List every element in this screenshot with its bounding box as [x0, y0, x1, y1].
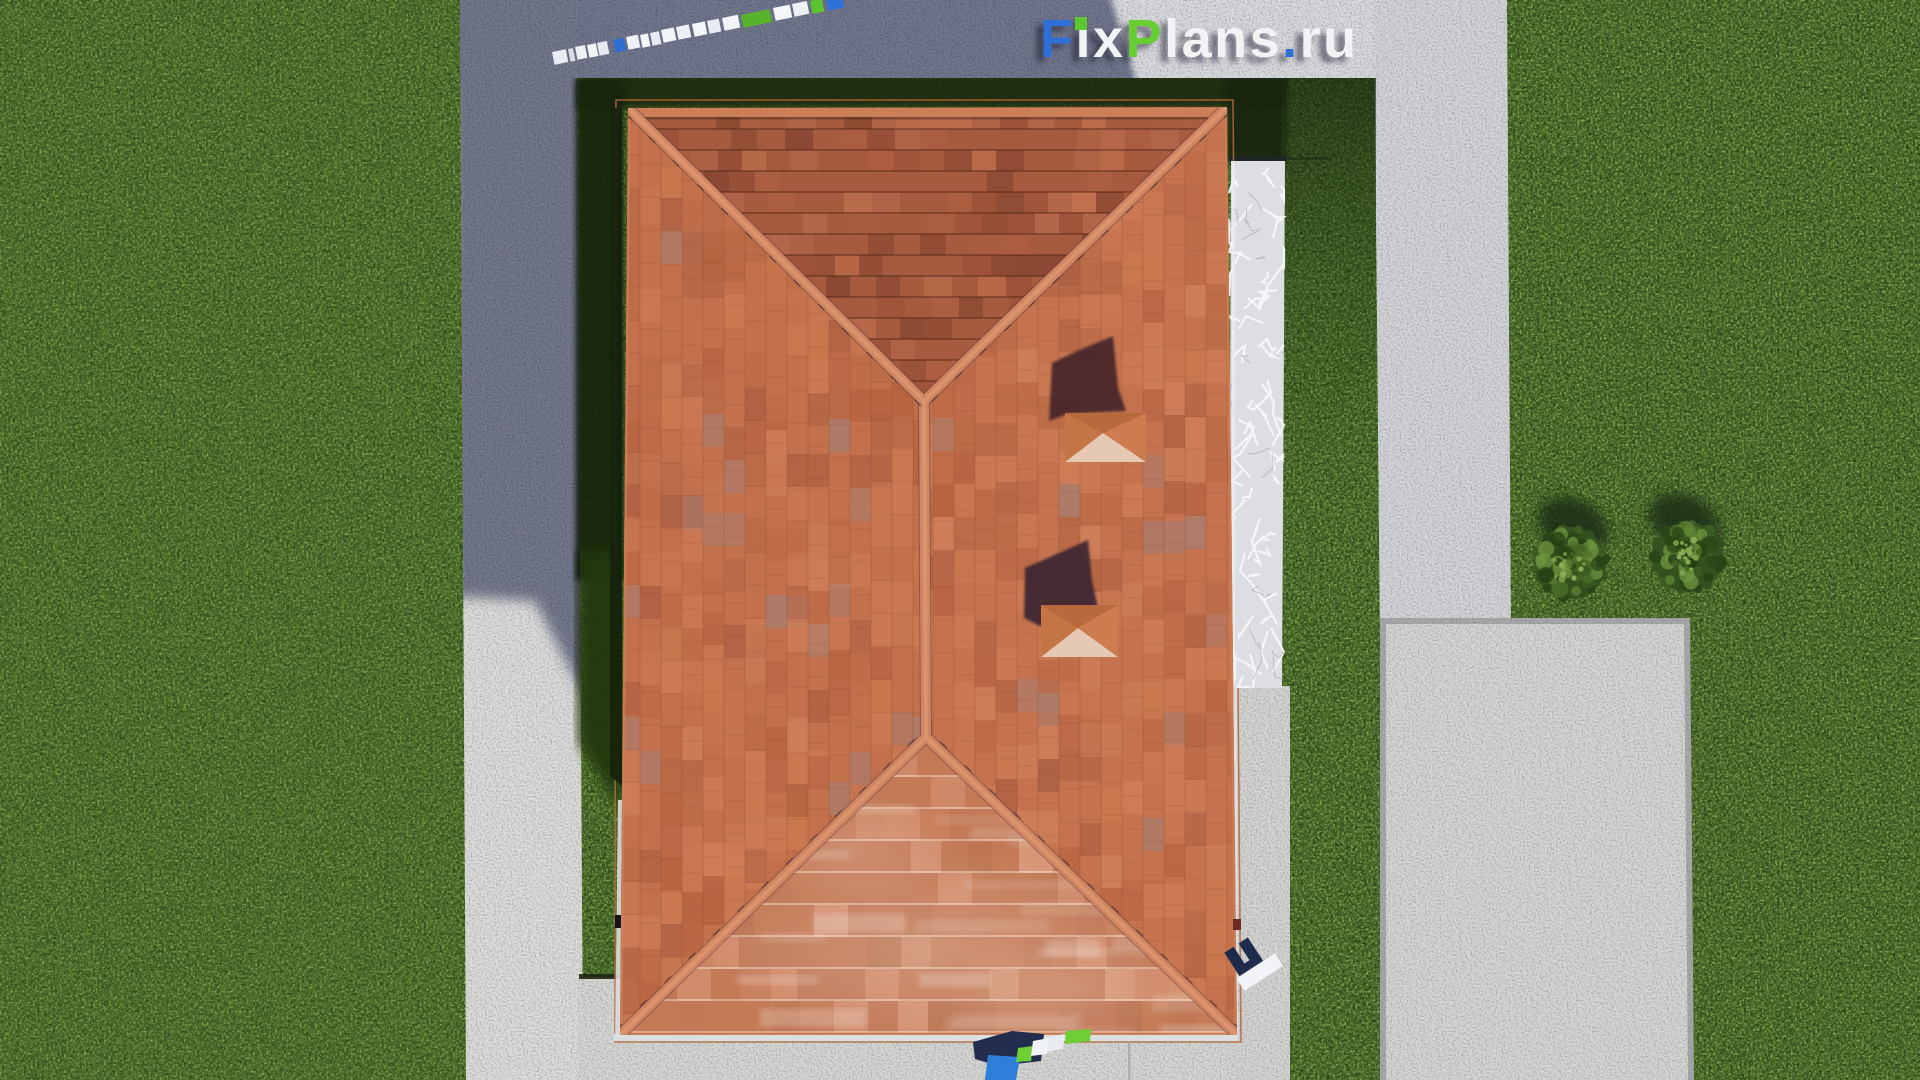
svg-text:FixPlans.ru: FixPlans.ru — [1040, 9, 1359, 69]
